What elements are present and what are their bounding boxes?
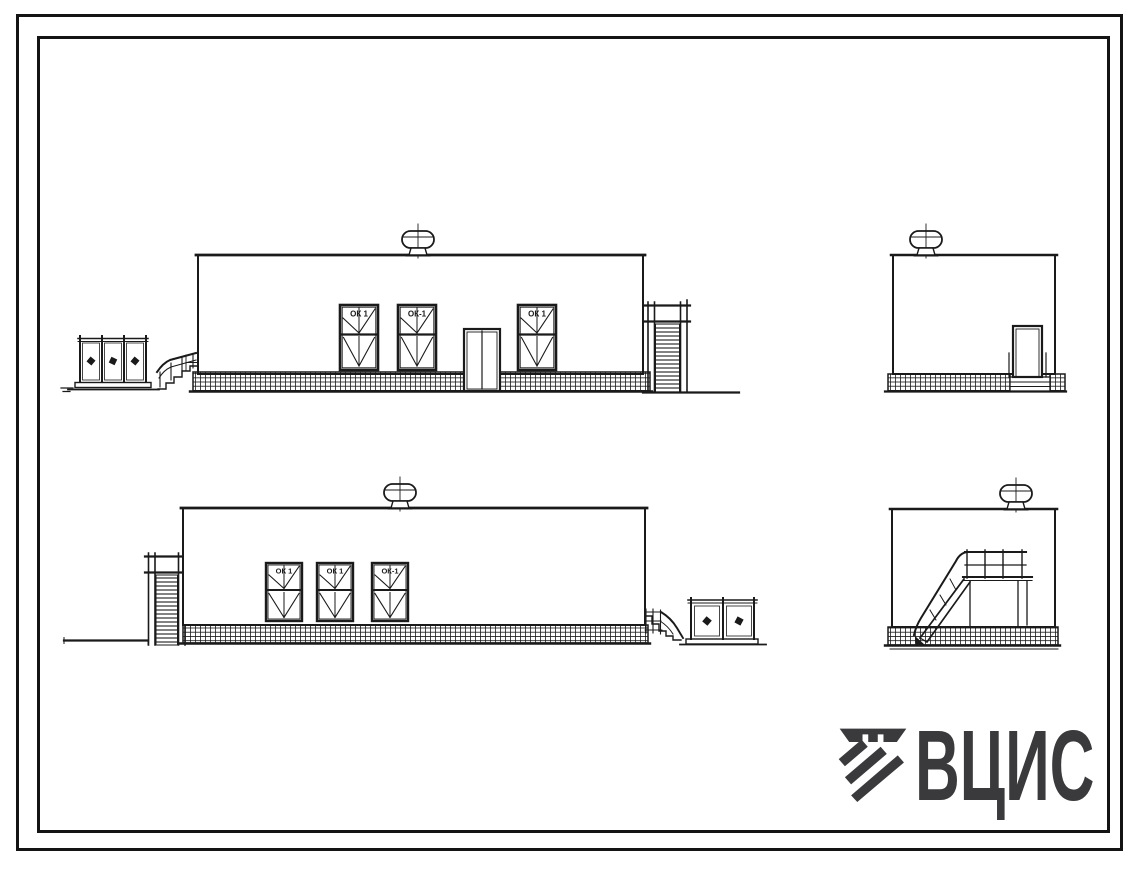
roof-vent-icon <box>1000 478 1032 512</box>
window: ОК 1 <box>340 305 378 370</box>
window-label: ОК-1 <box>381 567 398 576</box>
roof-vent-icon <box>910 224 942 258</box>
rear-elevation-drawing: ОК 1 ОК 1 ОК-1 <box>60 468 770 664</box>
end-elevation-door-drawing <box>880 222 1080 404</box>
side-door <box>1013 326 1042 377</box>
roof-vent-icon <box>384 477 416 511</box>
plinth-hatched <box>180 625 650 644</box>
window-label: ОК 1 <box>350 310 368 319</box>
window-label: ОК-1 <box>408 310 427 319</box>
roof-ladder-side <box>145 551 188 645</box>
logo-text: ВЦИС <box>915 716 1094 816</box>
window: ОК 1 <box>266 563 302 621</box>
window: ОК 1 <box>518 305 556 370</box>
window-label: ОК 1 <box>528 310 546 319</box>
foundation-hatched <box>885 627 1060 649</box>
gate-latch-marks <box>86 356 139 365</box>
window: ОК 1 <box>317 563 353 621</box>
building-outline <box>181 508 647 625</box>
yard-fence <box>680 598 766 645</box>
exit-steps-railing <box>645 609 683 640</box>
logo: ВЦИС <box>835 712 1139 816</box>
plinth-hatched <box>190 372 652 392</box>
window: ОК-1 <box>398 305 436 370</box>
front-elevation-drawing: ОК 1 ОК-1 ОК 1 <box>60 222 752 404</box>
roof-ladder-side <box>643 300 739 393</box>
building-outline <box>890 509 1057 627</box>
ground-line <box>64 638 148 646</box>
window-label: ОК 1 <box>276 567 293 576</box>
logo-mark-icon <box>835 722 911 802</box>
entrance-door <box>464 329 500 391</box>
entrance-steps-railing <box>157 353 198 389</box>
entrance-fence <box>68 336 159 390</box>
end-elevation-stair-drawing <box>860 468 1075 664</box>
window: ОК-1 <box>372 563 408 621</box>
window-label: ОК 1 <box>327 567 344 576</box>
drawing-sheet: ОК 1 ОК-1 ОК 1 <box>0 0 1139 869</box>
roof-vent-icon <box>402 224 434 258</box>
